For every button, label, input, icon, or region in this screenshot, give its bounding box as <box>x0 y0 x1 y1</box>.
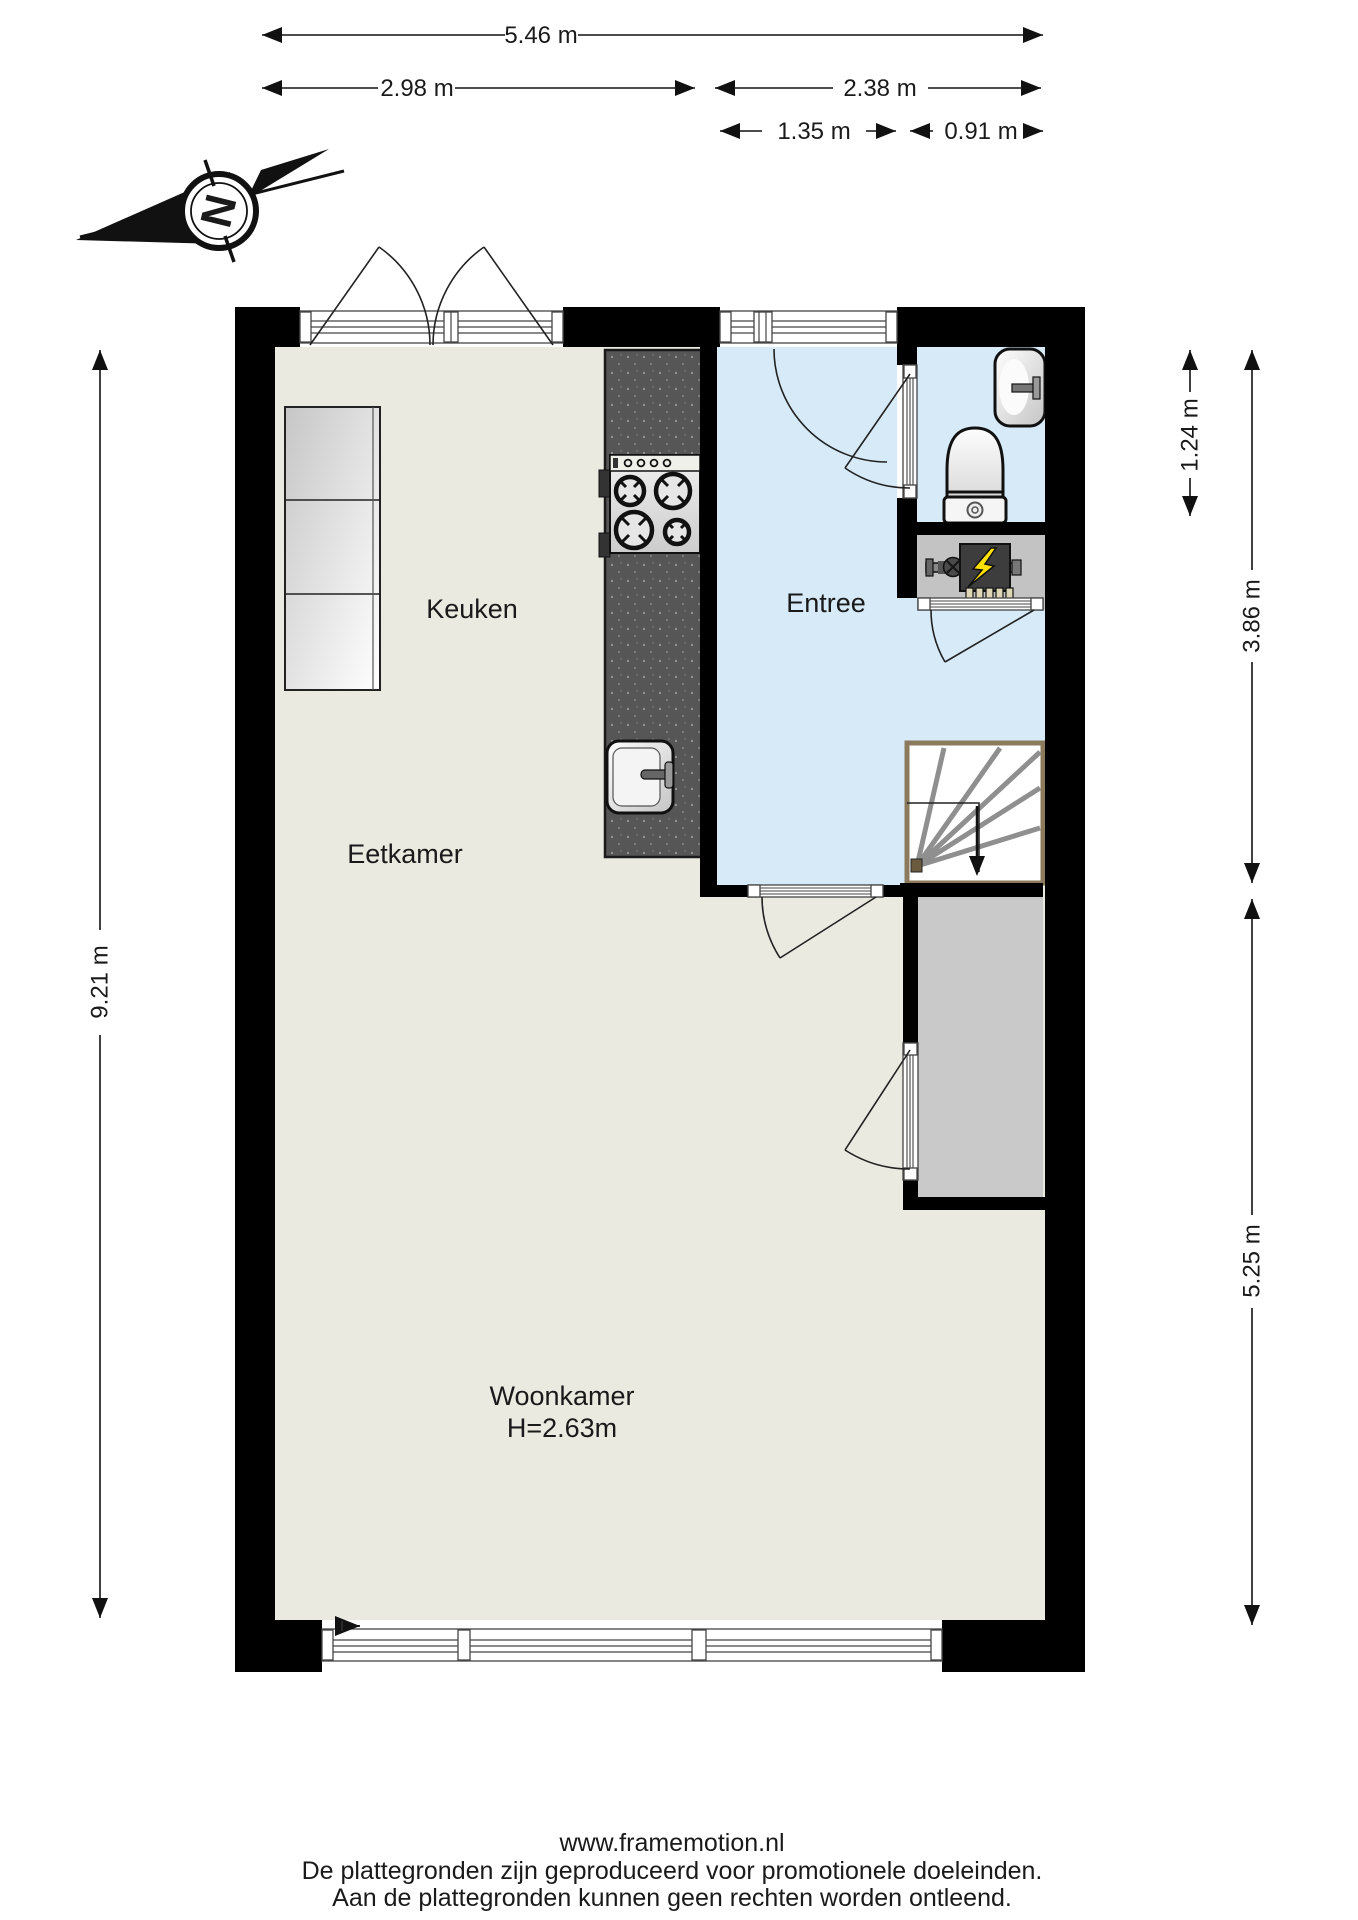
bathroom-bottom-wall <box>917 522 1045 535</box>
outer-wall-bottom-segment <box>942 1620 1085 1672</box>
faucet-handle <box>665 762 673 788</box>
door-end-cap <box>904 1168 917 1180</box>
meter-closet-left-wall <box>897 535 917 598</box>
bathroom-sink <box>995 349 1045 426</box>
footer: www.framemotion.nl De plattegronden zijn… <box>302 1829 1043 1912</box>
door-end-cap <box>904 365 916 378</box>
dimension-left-width-label: 2.98 m <box>380 75 453 102</box>
staircase <box>907 743 1043 883</box>
window-end-cap <box>322 1630 333 1660</box>
entree-bottom-wall-segment <box>883 885 900 897</box>
dimension-right-width-label: 2.38 m <box>843 75 916 102</box>
floorplan-page: N 5.46 m 2.98 m 2.38 m 1.35 m 0.91 m 9.2… <box>0 0 1358 1920</box>
door-end-cap <box>904 485 916 498</box>
kitchen-sink <box>607 741 673 813</box>
window-end-cap <box>931 1630 942 1660</box>
dimension-woonkamer-height-label: 5.25 m <box>1239 1224 1266 1297</box>
compass-rose: N <box>76 149 344 262</box>
dimension-total-height-label: 9.21 m <box>87 945 114 1018</box>
stairs-newel-post <box>911 859 922 872</box>
stove-handle <box>599 470 610 497</box>
toilet <box>944 428 1006 523</box>
understairs-closet-floor <box>918 883 1043 1210</box>
entree-bathroom-wall-segment <box>897 498 917 535</box>
outer-wall-top-segment <box>235 307 300 347</box>
understairs-wall <box>900 883 1043 897</box>
footer-disclaimer-line2: Aan de plattegronden kunnen geen rechten… <box>332 1884 1012 1912</box>
cabinet-block <box>285 407 380 690</box>
window-end-cap <box>300 312 311 342</box>
window-end-cap <box>720 312 731 342</box>
window-mullion <box>754 312 772 342</box>
entree-bottom-wall-segment <box>717 885 748 897</box>
kitchen-cabinets <box>285 407 380 690</box>
room-label-keuken: Keuken <box>426 594 518 624</box>
closet-bottom-wall <box>903 1197 1048 1210</box>
dimension-bathroom-height-label: 1.24 m <box>1177 398 1204 471</box>
burner <box>616 512 652 548</box>
window-french-doors-top <box>300 247 563 347</box>
door-handle-cap <box>871 885 883 897</box>
entree-kitchen-wall <box>700 347 717 897</box>
door-end-cap <box>748 885 760 897</box>
footer-website: www.framemotion.nl <box>558 1829 784 1857</box>
outer-wall-top-segment <box>563 307 720 347</box>
window-end-cap <box>886 312 897 342</box>
livingroom-sliding-window <box>322 1620 942 1672</box>
footer-disclaimer-line1: De plattegronden zijn geproduceerd voor … <box>302 1857 1043 1885</box>
window-band <box>322 1629 942 1661</box>
outer-wall-left <box>235 307 275 1672</box>
meter-pipe-fitting <box>926 559 933 576</box>
stove <box>599 455 700 557</box>
door-handle-cap <box>1031 598 1043 610</box>
door-end-cap <box>918 598 930 610</box>
room-label-ceiling-height: H=2.63m <box>507 1413 617 1443</box>
outer-wall-right <box>1045 307 1085 1672</box>
outer-wall-top-segment <box>897 307 1085 347</box>
stove-handle <box>599 533 610 557</box>
floorplan-drawing: N 5.46 m 2.98 m 2.38 m 1.35 m 0.91 m 9.2… <box>0 0 1358 1920</box>
window-mullion <box>692 1630 706 1660</box>
faucet-handle <box>1033 377 1040 399</box>
room-label-entree: Entree <box>786 588 866 618</box>
burner <box>656 474 690 508</box>
closet-left-wall-segment <box>903 897 918 1043</box>
toilet-flush-button <box>968 503 983 518</box>
window-mullion <box>458 1630 470 1660</box>
entree-bathroom-wall-segment <box>897 347 917 365</box>
outer-wall-bottom-segment <box>235 1620 322 1672</box>
stove-display <box>613 458 618 468</box>
window-end-cap <box>552 312 563 342</box>
stove-control-strip <box>610 455 700 471</box>
room-label-woonkamer: Woonkamer <box>489 1381 634 1411</box>
dimension-entree-height-label: 3.86 m <box>1239 579 1266 652</box>
closet-left-wall-segment <box>903 1180 918 1197</box>
meter-pipe-fitting-right <box>1012 560 1021 575</box>
dimension-entree-width-label: 1.35 m <box>777 118 850 145</box>
compass-east-point <box>247 149 329 199</box>
burner <box>665 520 689 544</box>
door-end-cap <box>904 1043 917 1055</box>
dimension-stairs-width-label: 0.91 m <box>944 118 1017 145</box>
dimension-total-width-label: 5.46 m <box>504 22 577 49</box>
toilet-bowl <box>947 428 1003 500</box>
room-label-eetkamer: Eetkamer <box>347 839 463 869</box>
burner <box>616 477 644 505</box>
